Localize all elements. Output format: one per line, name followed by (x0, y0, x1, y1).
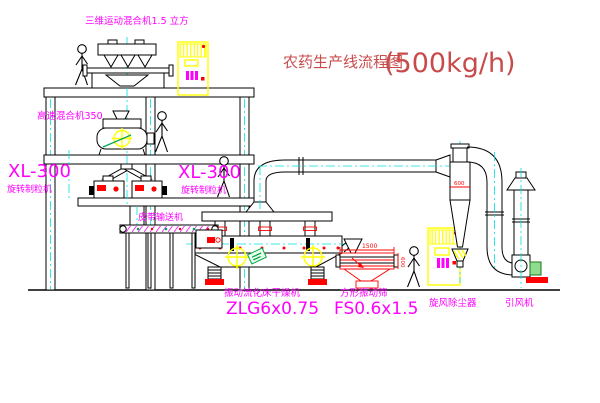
high-speed-mixer (97, 111, 154, 155)
label-dryer-name: 振动流化床干燥机 (224, 287, 301, 299)
label-screen-name: 方形振动筛 (340, 287, 388, 299)
label-belt-conveyor: 皮带输送机 (138, 211, 183, 223)
label-dryer-model: ZLG6x0.75 (226, 299, 319, 319)
label-cyclone: 旋风除尘器 (429, 297, 477, 309)
diagram-svg: 三维运动混合机1.5 立方 农药生产线流程图 (500kg/h) 高速混合机35… (0, 0, 600, 403)
worker-figure (408, 247, 420, 287)
dimension-screen-length: 1500 (362, 243, 377, 250)
process-flow-diagram: 三维运动混合机1.5 立方 农药生产线流程图 (500kg/h) 高速混合机35… (0, 0, 600, 403)
label-high-speed-mixer: 高速混合机350 (37, 110, 103, 122)
induced-draft-fan (467, 147, 548, 288)
label-granulator-center-name: 旋转制粒机 (181, 184, 226, 196)
label-3d-mixer: 三维运动混合机1.5 立方 (85, 15, 189, 27)
label-fan: 引风机 (505, 297, 534, 309)
worker-figure (156, 112, 168, 152)
control-cabinet-top (178, 42, 208, 95)
exhaust-duct (246, 155, 455, 212)
dimension-screen-width: 600 (399, 257, 405, 268)
page-title-capacity: (500kg/h) (384, 48, 516, 79)
label-granulator-center-model: XL-300 (178, 162, 241, 183)
label-granulator-left-name: 旋转制粒机 (7, 183, 52, 195)
label-screen-model: FS0.6x1.5 (334, 299, 418, 319)
dimension-cyclone-diameter: 600 (454, 181, 465, 187)
label-granulator-left-model: XL-300 (8, 161, 71, 182)
